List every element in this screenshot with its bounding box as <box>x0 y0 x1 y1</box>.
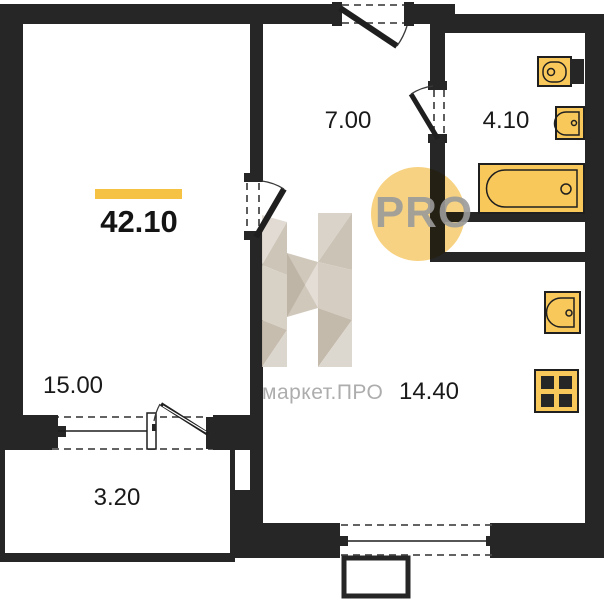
living-balcony-window <box>48 404 213 449</box>
entrance-door-leaf <box>340 8 397 46</box>
room-door-jamb-top <box>244 173 263 182</box>
balcony-wall-left <box>0 450 5 562</box>
balcony-wall-bottom <box>0 553 235 562</box>
bathroom-sink-icon <box>555 107 585 139</box>
kitchen-area-label: 14.40 <box>394 380 464 404</box>
kitchen-sink-icon <box>545 292 580 333</box>
bathtub-icon <box>479 164 584 213</box>
right-wall <box>585 14 604 558</box>
kitchen-window-jamb-right <box>486 536 494 546</box>
entrance-door <box>340 5 407 46</box>
total-area-underline <box>95 189 182 199</box>
window-wall-right <box>213 415 263 450</box>
stove-icon <box>535 370 578 412</box>
brand-logo-h-icon <box>262 213 352 367</box>
kitchen-top-wall <box>430 252 585 262</box>
room-divider-upper <box>250 24 263 175</box>
left-wall <box>0 4 23 450</box>
window-wall-left <box>23 415 52 450</box>
toilet-icon <box>538 57 584 86</box>
french-balcony-outline <box>344 558 408 596</box>
floor-plan: 42.10 15.00 3.20 7.00 4.10 14.40 PRO мар… <box>0 0 604 600</box>
bathroom-wall-upper <box>430 24 445 82</box>
balcony-area-label: 3.20 <box>88 486 146 510</box>
balcony-door <box>154 404 208 434</box>
hallway-area-label: 7.00 <box>318 109 378 133</box>
bathroom-area-label: 4.10 <box>478 109 534 133</box>
total-area-label: 42.10 <box>95 206 183 237</box>
watermark-pro-text: PRO <box>374 191 474 235</box>
balcony-wall-right <box>230 450 235 560</box>
watermark-brand-text: маркет.ПРО <box>262 382 383 403</box>
floor-plan-drawing <box>0 0 604 600</box>
bathroom-door-jamb-top <box>428 81 447 90</box>
kitchen-window-jamb-left <box>340 536 348 546</box>
living-room-area-label: 15.00 <box>40 374 106 398</box>
bottom-wall-left <box>263 523 340 558</box>
entrance-jamb-right <box>404 2 414 26</box>
bottom-wall-right <box>490 523 604 558</box>
window-frame-block <box>48 415 58 448</box>
top-wall-right <box>450 14 604 33</box>
entrance-jamb-left <box>332 2 342 26</box>
kitchen-window <box>340 525 494 555</box>
bathroom-door <box>411 86 444 139</box>
top-wall-left <box>0 4 342 24</box>
